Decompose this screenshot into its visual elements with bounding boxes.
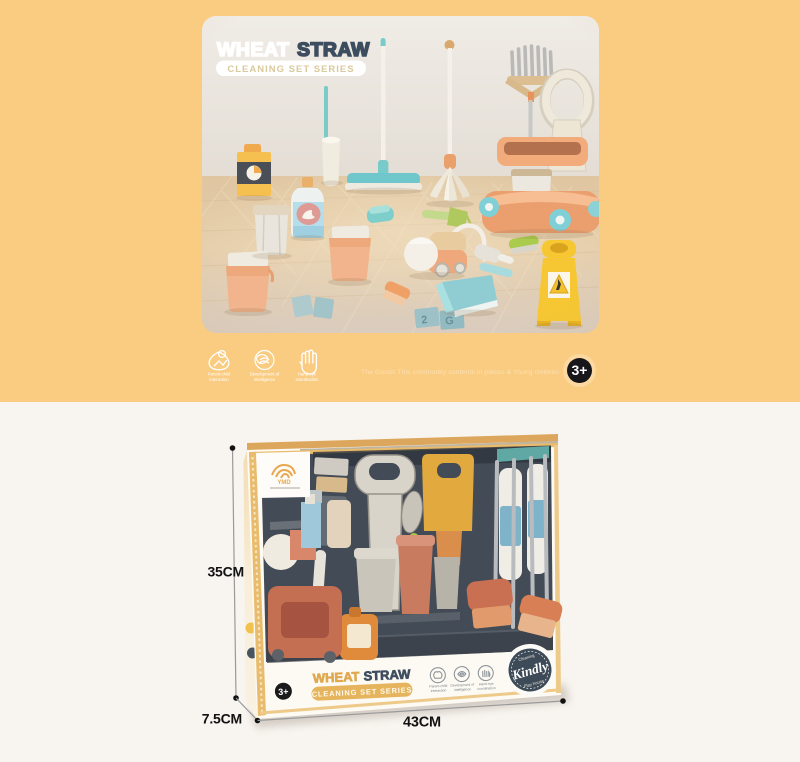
svg-text:7.5CM: 7.5CM <box>202 711 242 727</box>
svg-text:YMD: YMD <box>277 480 291 486</box>
svg-text:interaction: interaction <box>209 377 229 382</box>
svg-text:intelligence: intelligence <box>254 377 276 382</box>
svg-text:35CM: 35CM <box>207 564 244 580</box>
svg-text:intelligence: intelligence <box>454 687 471 692</box>
svg-text:coordination: coordination <box>477 686 496 691</box>
svg-text:Parent-child: Parent-child <box>208 372 231 377</box>
svg-text:Development of: Development of <box>250 372 280 377</box>
svg-text:coordination: coordination <box>296 377 319 382</box>
svg-text:43CM: 43CM <box>403 715 441 731</box>
svg-text:interaction: interaction <box>431 688 447 693</box>
svg-text:3+: 3+ <box>278 686 289 696</box>
svg-text:Hand-eye: Hand-eye <box>298 372 317 377</box>
